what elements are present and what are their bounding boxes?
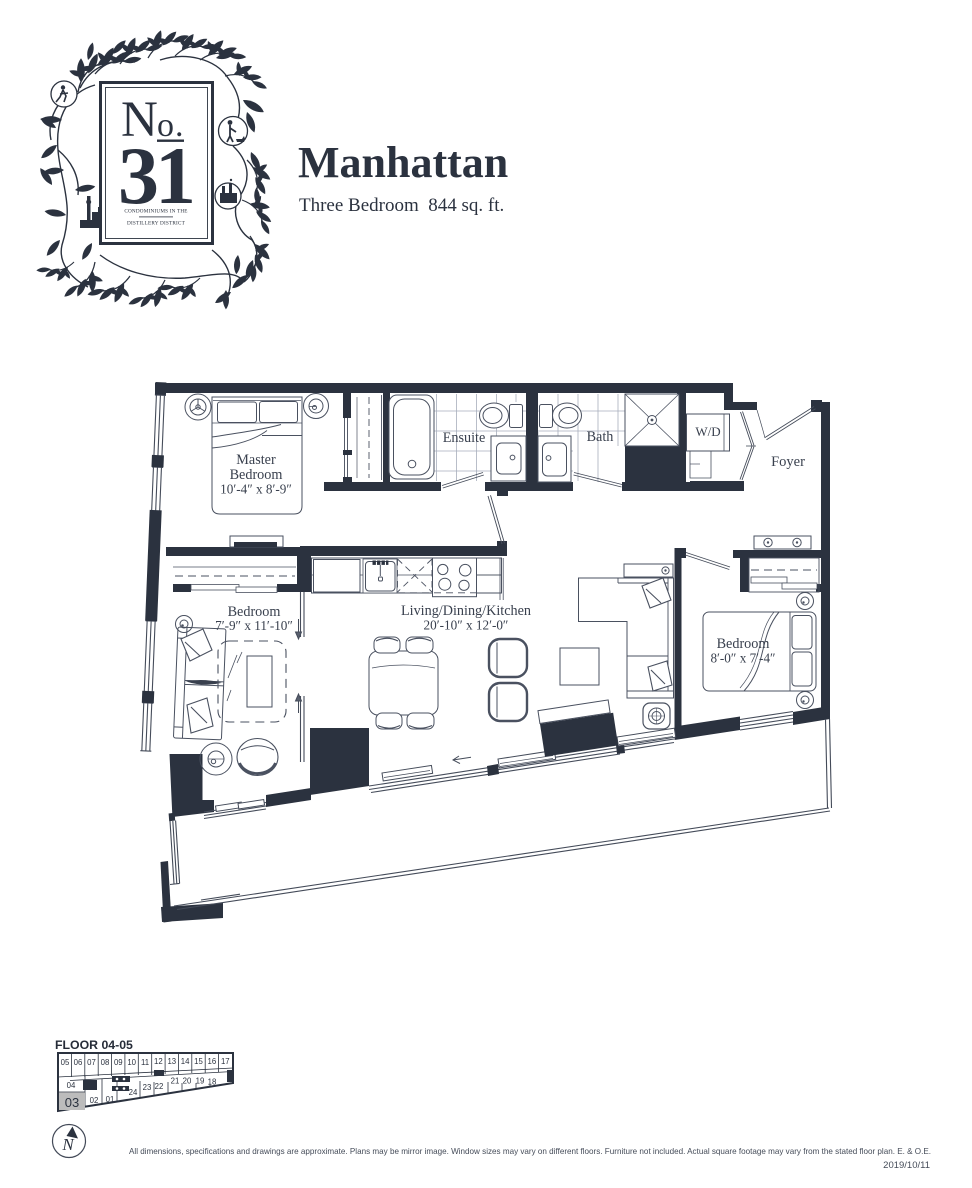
svg-text:Three Bedroom 844 sq. ft.: Three Bedroom 844 sq. ft. [299, 195, 504, 216]
svg-text:2019/10/11: 2019/10/11 [883, 1160, 930, 1171]
svg-text:Bath: Bath [587, 429, 614, 445]
svg-text:23: 23 [143, 1083, 152, 1092]
svg-text:20′-10″ x 12′-0″: 20′-10″ x 12′-0″ [424, 618, 509, 633]
svg-text:12: 12 [154, 1057, 163, 1066]
svg-text:DISTILLERY DISTRICT: DISTILLERY DISTRICT [127, 221, 186, 227]
svg-text:20: 20 [183, 1077, 192, 1086]
svg-text:Foyer: Foyer [771, 454, 805, 470]
svg-text:13: 13 [167, 1057, 176, 1066]
svg-text:04: 04 [67, 1081, 76, 1090]
svg-text:22: 22 [155, 1082, 164, 1091]
svg-text:Master: Master [236, 452, 276, 468]
svg-text:14: 14 [181, 1057, 190, 1066]
svg-text:7′-9″ x 11′-10″: 7′-9″ x 11′-10″ [215, 618, 293, 633]
svg-text:21: 21 [171, 1077, 180, 1086]
svg-text:10′-4″ x 8′-9″: 10′-4″ x 8′-9″ [220, 482, 292, 497]
svg-text:05: 05 [61, 1058, 70, 1067]
svg-text:17: 17 [221, 1057, 230, 1066]
svg-text:Manhattan: Manhattan [298, 138, 508, 187]
svg-text:02: 02 [90, 1096, 99, 1105]
svg-text:15: 15 [194, 1057, 203, 1066]
svg-text:09: 09 [114, 1058, 123, 1067]
svg-text:31: 31 [118, 130, 192, 221]
svg-text:18: 18 [208, 1078, 217, 1087]
svg-text:CONDOMINIUMS IN THE: CONDOMINIUMS IN THE [124, 209, 187, 215]
svg-text:19: 19 [196, 1077, 205, 1086]
svg-text:08: 08 [101, 1058, 110, 1067]
svg-text:W/D: W/D [695, 424, 720, 439]
svg-text:24: 24 [129, 1088, 138, 1097]
svg-text:All dimensions, specifications: All dimensions, specifications and drawi… [129, 1147, 931, 1156]
svg-text:01: 01 [106, 1095, 115, 1104]
svg-text:FLOOR 04-05: FLOOR 04-05 [55, 1038, 133, 1052]
svg-text:N: N [61, 1135, 75, 1154]
svg-text:11: 11 [141, 1058, 149, 1067]
svg-text:Ensuite: Ensuite [443, 430, 486, 446]
svg-text:03: 03 [65, 1095, 79, 1110]
svg-text:10: 10 [127, 1058, 136, 1067]
svg-text:8′-0″ x 7′-4″: 8′-0″ x 7′-4″ [710, 651, 775, 666]
svg-text:06: 06 [74, 1058, 83, 1067]
svg-text:07: 07 [87, 1058, 96, 1067]
svg-text:16: 16 [208, 1057, 217, 1066]
